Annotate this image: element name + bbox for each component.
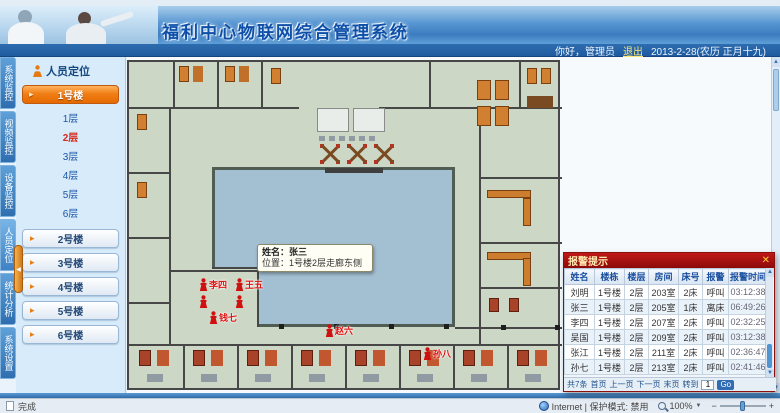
bed-furniture — [509, 298, 519, 312]
person-arm-silhouette — [100, 11, 134, 27]
alarm-cell-alarm: 呼叫 — [703, 330, 729, 345]
bed-furniture — [225, 66, 235, 82]
table-set — [319, 142, 341, 166]
pager-first[interactable]: 首页 — [590, 379, 606, 390]
zoom-slider-track[interactable] — [720, 405, 766, 407]
internet-zone-icon — [539, 401, 549, 411]
wall — [261, 62, 263, 107]
magnifier-icon — [658, 402, 666, 410]
alarm-cell-name: 吴国 — [565, 330, 595, 345]
scrollbar-thumb[interactable] — [767, 344, 772, 368]
person-locate-icon — [32, 65, 43, 77]
person-marker[interactable]: 李四 — [199, 278, 227, 291]
person-icon — [209, 311, 218, 324]
alarm-cell-name: 张江 — [565, 345, 595, 360]
wall — [479, 242, 562, 244]
wall — [479, 287, 562, 289]
table-set — [346, 142, 368, 166]
alarm-cell-floor: 2层 — [625, 285, 649, 300]
alarm-cell-floor: 2层 — [625, 345, 649, 360]
person-icon — [199, 278, 208, 291]
alarm-cell-name: 刘明 — [565, 285, 595, 300]
zoom-out-icon[interactable]: − — [711, 401, 716, 411]
person-silhouette-icon — [66, 23, 106, 44]
alarm-cell-alarm: 呼叫 — [703, 315, 729, 330]
counter-furniture — [523, 198, 531, 226]
zoom-control[interactable]: 100% ▼ — [658, 401, 701, 411]
floor-item[interactable]: 1层 — [16, 110, 125, 129]
alarm-panel: 报警提示 ✕ 姓名楼栋楼层房间床号报警报警时间 刘明1号楼2层203室2床呼叫0… — [563, 252, 775, 392]
building-button-active[interactable]: 1号楼 — [22, 85, 119, 104]
room-unit — [293, 344, 347, 390]
lobby-desk — [317, 108, 349, 132]
alarm-panel-titlebar: 报警提示 ✕ — [564, 253, 774, 268]
person-marker[interactable]: 钱七 — [209, 311, 237, 324]
person-icon — [235, 295, 244, 308]
column-dot — [444, 324, 449, 329]
alarm-column-header: 楼层 — [625, 269, 649, 285]
person-marker-label: 李四 — [209, 278, 227, 291]
sidebar-collapse-handle[interactable]: ◀ — [14, 245, 23, 293]
alarm-cell-time: 06:49:26 — [729, 300, 768, 315]
alarm-column-header: 报警 — [703, 269, 729, 285]
alarm-cell-room: 211室 — [649, 345, 679, 360]
alarm-pager: 共7条 首页 上一页 下一页 末页 转到 Go — [564, 377, 776, 391]
room-unit — [455, 344, 509, 390]
person-tooltip: 姓名：张三 位置：1号楼2层走廊东侧 — [257, 244, 373, 272]
person-marker[interactable]: 赵六 — [325, 324, 353, 337]
alarm-cell-floor: 2层 — [625, 330, 649, 345]
alarm-column-header: 房间 — [649, 269, 679, 285]
page-icon — [6, 401, 14, 411]
wall — [479, 177, 562, 179]
zoom-slider[interactable]: − + — [711, 401, 774, 411]
security-zone: Internet | 保护模式: 禁用 — [539, 400, 649, 413]
bed-furniture — [477, 106, 491, 126]
zoom-in-icon[interactable]: + — [769, 401, 774, 411]
alarm-cell-alarm: 呼叫 — [703, 360, 729, 375]
bed-furniture — [271, 68, 281, 84]
module-tab-3[interactable]: 设备监控 — [0, 165, 16, 217]
go-button[interactable]: Go — [717, 380, 734, 390]
floor-item[interactable]: 6层 — [16, 205, 125, 224]
alarm-cell-time: 02:41:46 — [729, 360, 768, 375]
building-button[interactable]: 3号楼 — [22, 253, 119, 272]
sidebar: ◀ 人员定位 1号楼 1层2层3层4层5层6层 2号楼3号楼4号楼5号楼6号楼 — [16, 57, 126, 393]
wall — [519, 62, 521, 107]
pager-goto-label: 转到 — [682, 379, 698, 390]
alarm-cell-building: 1号楼 — [595, 315, 625, 330]
alarm-row[interactable]: 张江1号楼2层211室2床呼叫02:36:47 — [565, 345, 768, 360]
person-marker-label: 钱七 — [219, 311, 237, 324]
pager-next[interactable]: 下一页 — [636, 379, 660, 390]
wall — [129, 302, 169, 304]
wall — [169, 107, 171, 344]
alarm-cell-room: 209室 — [649, 330, 679, 345]
column-dot — [279, 324, 284, 329]
alarm-cell-bed: 2床 — [679, 285, 703, 300]
scrollbar-thumb[interactable] — [773, 69, 779, 111]
header-banner: 福利中心物联网综合管理系统 — [0, 6, 780, 44]
statusbar: 完成 Internet | 保护模式: 禁用 100% ▼ − + — [0, 398, 780, 413]
alarm-row[interactable]: 吴国1号楼2层209室2床呼叫03:12:38 — [565, 330, 768, 345]
bed-furniture — [489, 298, 499, 312]
collapse-arrow-icon: ◀ — [16, 266, 21, 273]
pager-last[interactable]: 末页 — [663, 379, 679, 390]
scroll-up-icon[interactable]: ▲ — [772, 57, 780, 67]
wall — [129, 172, 169, 174]
wall — [455, 327, 562, 329]
wall — [217, 62, 219, 107]
greeting-text: 你好，管理员 — [555, 43, 615, 58]
date-text: 2013-2-28(农历 正月十九) — [651, 43, 766, 58]
alarm-row[interactable]: 刘明1号楼2层203室2床呼叫03:12:38 — [565, 285, 768, 300]
close-icon[interactable]: ✕ — [762, 256, 770, 266]
lobby-chairs — [319, 136, 377, 141]
alarm-cell-time: 02:36:47 — [729, 345, 768, 360]
person-marker[interactable] — [235, 295, 244, 308]
logout-link[interactable]: 退出 — [623, 43, 643, 58]
person-marker-label: 孙八 — [433, 347, 451, 360]
alarm-cell-room: 203室 — [649, 285, 679, 300]
alarm-table: 姓名楼栋楼层房间床号报警报警时间 刘明1号楼2层203室2床呼叫03:12:38… — [564, 268, 768, 375]
alarm-panel-title: 报警提示 — [568, 253, 608, 268]
person-icon — [199, 295, 208, 308]
wall — [171, 270, 259, 272]
alarm-cell-building: 1号楼 — [595, 345, 625, 360]
alarm-column-header: 楼栋 — [595, 269, 625, 285]
alarm-cell-alarm: 呼叫 — [703, 285, 729, 300]
zoom-slider-knob[interactable] — [740, 401, 745, 411]
alarm-cell-time: 03:12:38 — [729, 330, 768, 345]
table-set — [373, 142, 395, 166]
wall — [129, 107, 299, 109]
column-dot — [501, 325, 506, 330]
tooltip-location: 位置：1号楼2层走廊东侧 — [262, 258, 368, 269]
person-marker-label: 王五 — [245, 278, 263, 291]
alarm-cell-bed: 2床 — [679, 345, 703, 360]
alarm-row[interactable]: 李四1号楼2层207室2床呼叫02:32:25 — [565, 315, 768, 330]
pager-info: 共7条 — [567, 379, 587, 390]
alarm-cell-time: 02:32:25 — [729, 315, 768, 330]
bed-furniture — [527, 68, 537, 84]
lobby-desk — [353, 108, 385, 132]
module-tab-2[interactable]: 视频监控 — [0, 111, 16, 163]
alarm-cell-name: 张三 — [565, 300, 595, 315]
bed-furniture — [137, 182, 147, 198]
alarm-cell-name: 李四 — [565, 315, 595, 330]
floor-list: 1层2层3层4层5层6层 — [16, 108, 125, 226]
zone-text: Internet | 保护模式: 禁用 — [552, 400, 649, 413]
pager-prev[interactable]: 上一页 — [609, 379, 633, 390]
person-marker[interactable]: 孙八 — [423, 347, 451, 360]
counter-furniture — [523, 258, 531, 286]
alarm-table-body: 刘明1号楼2层203室2床呼叫03:12:38张三1号楼2层205室1床离床06… — [565, 285, 768, 375]
room-unit — [347, 344, 401, 390]
person-marker[interactable]: 王五 — [235, 278, 263, 291]
wall — [479, 107, 481, 344]
room-unit — [239, 344, 293, 390]
app-title: 福利中心物联网综合管理系统 — [162, 18, 409, 43]
bed-furniture — [541, 68, 551, 84]
floor-item[interactable]: 2层 — [16, 129, 125, 148]
person-icon — [325, 324, 334, 337]
person-marker-label: 赵六 — [335, 324, 353, 337]
bed-furniture — [137, 114, 147, 130]
module-tab-1[interactable]: 系统监控 — [0, 57, 16, 109]
alarm-cell-floor: 2层 — [625, 360, 649, 375]
person-icon — [235, 278, 244, 291]
alarm-column-header: 姓名 — [565, 269, 595, 285]
alarm-cell-alarm: 呼叫 — [703, 345, 729, 360]
alarm-row[interactable]: 张三1号楼2层205室1床离床06:49:26 — [565, 300, 768, 315]
bed-furniture — [179, 66, 189, 82]
floor-item[interactable]: 5层 — [16, 186, 125, 205]
wall — [173, 62, 175, 107]
alarm-cell-bed: 2床 — [679, 330, 703, 345]
status-right: Internet | 保护模式: 禁用 100% ▼ − + — [539, 400, 774, 413]
floor-item[interactable]: 3层 — [16, 148, 125, 167]
alarm-cell-floor: 2层 — [625, 300, 649, 315]
zoom-level: 100% — [669, 401, 692, 411]
alarm-cell-room: 213室 — [649, 360, 679, 375]
alarm-cell-bed: 2床 — [679, 315, 703, 330]
person-marker[interactable] — [199, 295, 208, 308]
zoom-dropdown-icon[interactable]: ▼ — [696, 403, 702, 409]
person-icon — [423, 347, 432, 360]
building-button[interactable]: 6号楼 — [22, 325, 119, 344]
room-unit — [185, 344, 239, 390]
alarm-column-header: 床号 — [679, 269, 703, 285]
alarm-cell-bed: 2床 — [679, 360, 703, 375]
alarm-cell-alarm: 离床 — [703, 300, 729, 315]
page-input[interactable] — [701, 380, 714, 390]
building-button[interactable]: 5号楼 — [22, 301, 119, 320]
tooltip-name: 姓名：张三 — [262, 247, 368, 258]
wall — [129, 237, 169, 239]
header-photo — [0, 6, 158, 44]
floorplan[interactable]: 姓名：张三 位置：1号楼2层走廊东侧 李四王五钱七赵六孙八 — [127, 60, 560, 390]
sidebar-title: 人员定位 — [46, 63, 90, 79]
alarm-scrollbar[interactable]: ▲ ▼ — [765, 268, 773, 378]
column-dot — [389, 324, 394, 329]
alarm-cell-floor: 2层 — [625, 315, 649, 330]
bed-furniture — [495, 80, 509, 100]
module-tab-bar: 系统监控视频监控设备监控人员定位统计分析系统设置 — [0, 57, 16, 393]
alarm-cell-building: 1号楼 — [595, 285, 625, 300]
alarm-cell-name: 孙七 — [565, 360, 595, 375]
module-tab-6[interactable]: 系统设置 — [0, 327, 16, 379]
wall — [429, 62, 431, 107]
counter-furniture — [487, 190, 531, 198]
bed-furniture — [477, 80, 491, 100]
building-button[interactable]: 4号楼 — [22, 277, 119, 296]
alarm-table-head: 姓名楼栋楼层房间床号报警报警时间 — [565, 269, 768, 285]
lobby-counter — [325, 168, 383, 173]
cabinet-furniture — [527, 96, 553, 108]
status-left: 完成 — [6, 400, 36, 413]
alarm-cell-building: 1号楼 — [595, 330, 625, 345]
alarm-column-header: 报警时间 — [729, 269, 768, 285]
alarm-cell-room: 205室 — [649, 300, 679, 315]
alarm-cell-building: 1号楼 — [595, 360, 625, 375]
alarm-cell-time: 03:12:38 — [729, 285, 768, 300]
alarm-cell-bed: 1床 — [679, 300, 703, 315]
scroll-up-icon[interactable]: ▲ — [766, 268, 774, 277]
person-silhouette-icon — [8, 22, 44, 44]
building-button[interactable]: 2号楼 — [22, 229, 119, 248]
header-subbar: 你好，管理员 退出 2013-2-28(农历 正月十九) — [0, 44, 780, 57]
room-unit — [509, 344, 563, 390]
alarm-cell-room: 207室 — [649, 315, 679, 330]
column-dot — [555, 325, 560, 330]
alarm-cell-building: 1号楼 — [595, 300, 625, 315]
sidebar-header: 人员定位 — [16, 57, 125, 83]
bed-furniture — [495, 106, 509, 126]
alarm-row[interactable]: 孙七1号楼2层213室2床呼叫02:41:46 — [565, 360, 768, 375]
floor-item[interactable]: 4层 — [16, 167, 125, 186]
building-list: 2号楼3号楼4号楼5号楼6号楼 — [16, 226, 125, 347]
status-text: 完成 — [18, 400, 36, 413]
room-unit — [131, 344, 185, 390]
